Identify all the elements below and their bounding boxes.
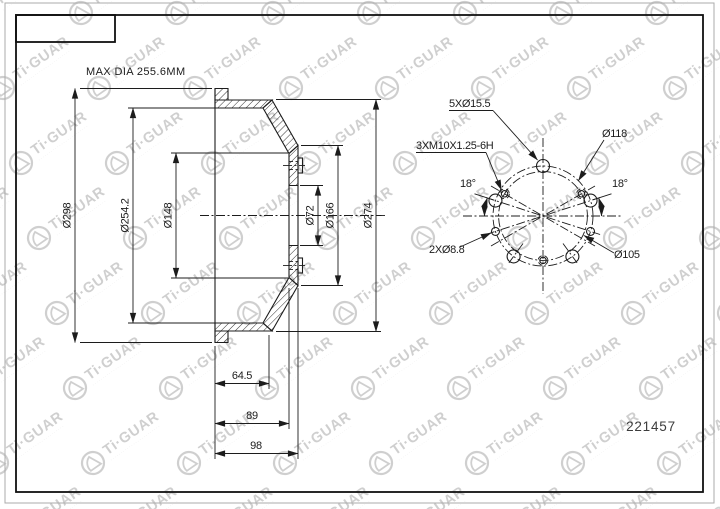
callout-2x8-8: 2XØ8.8 <box>429 233 491 256</box>
dim-label-64-5: 64.5 <box>232 370 252 382</box>
dim-label-254: Ø254.2 <box>120 198 132 232</box>
dim-label-2x8-8: 2XØ8.8 <box>429 244 465 256</box>
dim-label-105: Ø105 <box>614 249 640 261</box>
title-block <box>16 15 115 42</box>
callout-118: Ø118 <box>579 128 628 181</box>
outer-border <box>5 3 714 503</box>
dim-angle-left: 18° <box>460 178 494 216</box>
dim-label-166: Ø166 <box>325 202 337 228</box>
dim-label-angle-left: 18° <box>460 178 476 190</box>
dim-angle-right: 18° <box>593 178 628 216</box>
dim-label-298: Ø298 <box>62 202 74 228</box>
dim-98: 98 <box>215 288 298 459</box>
max-dia-note: MAX DIA 255.6MM <box>86 66 186 78</box>
drawing-frame <box>16 15 703 492</box>
callout-105: Ø105 <box>584 236 640 262</box>
dim-label-5x15-5: 5XØ15.5 <box>449 98 491 110</box>
dim-label-angle-right: 18° <box>612 178 628 190</box>
engineering-drawing-sheet: MAX DIA 255.6MM Ø298 Ø254.2 Ø148 <box>0 0 720 509</box>
dim-label-72: Ø72 <box>305 205 317 225</box>
dim-298: Ø298 <box>62 89 213 343</box>
dim-label-89: 89 <box>246 410 258 422</box>
drawing-canvas: Ti·GUAR························Ti·GUAR··… <box>0 0 720 509</box>
dim-label-3xm10: 3XM10X1.25-6H <box>416 140 494 152</box>
front-view: 18° 18° 5XØ15.5 3XM10X1.25-6H Ø118 <box>416 98 640 294</box>
part-number: 221457 <box>626 419 676 434</box>
dim-label-148: Ø148 <box>163 202 175 228</box>
dim-label-98: 98 <box>250 440 262 452</box>
section-view: MAX DIA 255.6MM Ø298 Ø254.2 Ø148 <box>62 66 386 459</box>
dim-label-118: Ø118 <box>602 128 627 140</box>
dim-label-274: Ø274 <box>363 202 375 228</box>
callout-3xm10: 3XM10X1.25-6H <box>416 140 502 190</box>
